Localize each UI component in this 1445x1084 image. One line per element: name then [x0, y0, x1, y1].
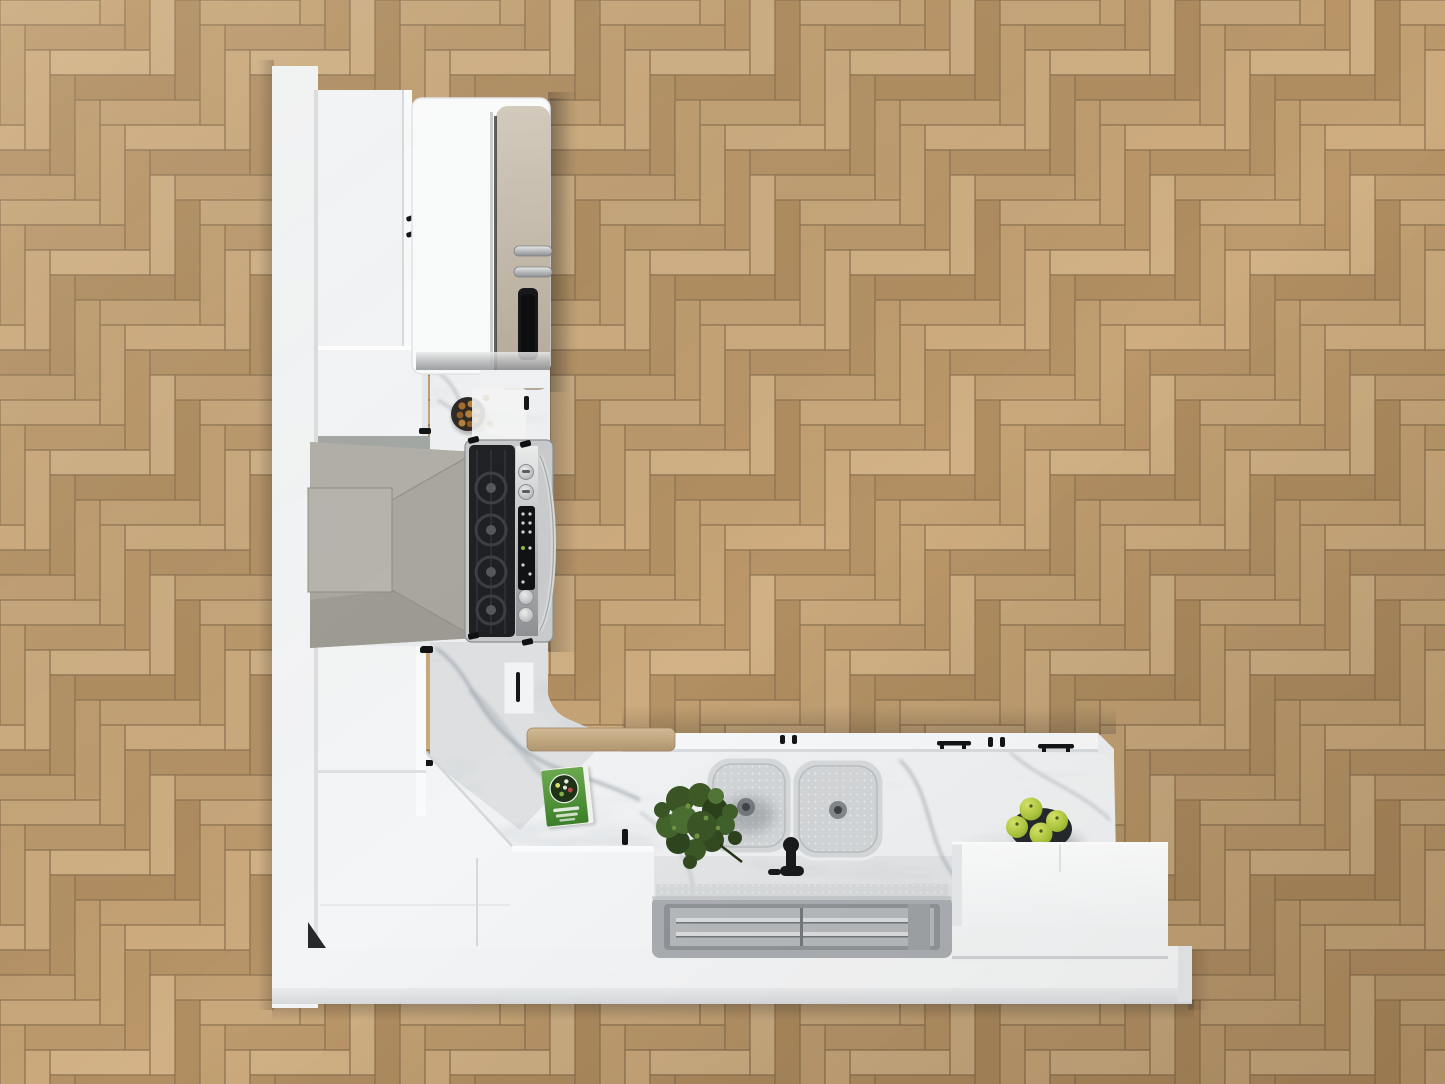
kitchen-top-view-render [0, 0, 1445, 1084]
light-overlay [0, 0, 1445, 1084]
